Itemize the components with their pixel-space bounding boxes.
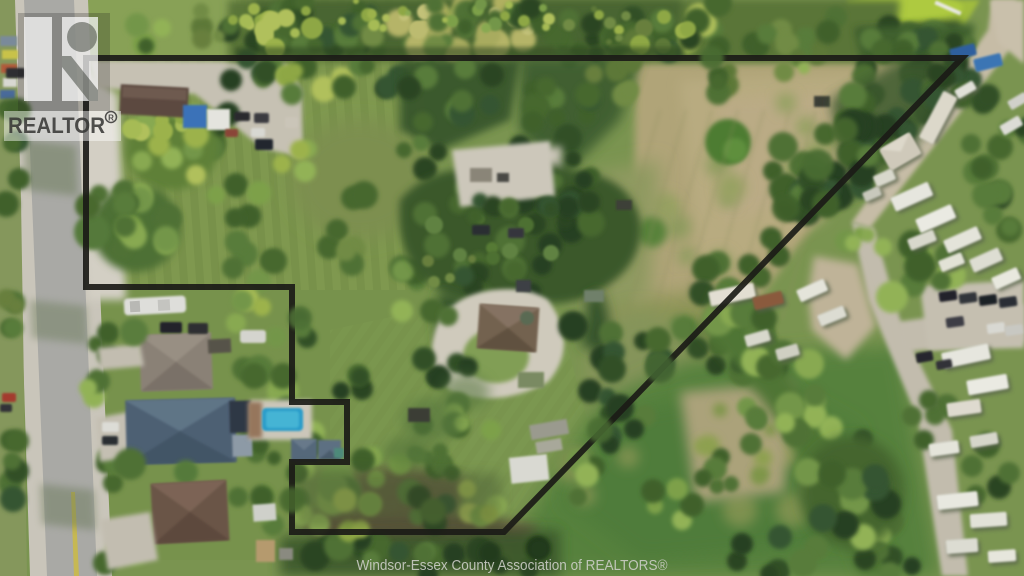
svg-text:REALTOR: REALTOR bbox=[8, 113, 105, 138]
svg-text:Windsor-Essex County Associati: Windsor-Essex County Association of REAL… bbox=[357, 558, 668, 574]
svg-text:R: R bbox=[108, 114, 114, 123]
